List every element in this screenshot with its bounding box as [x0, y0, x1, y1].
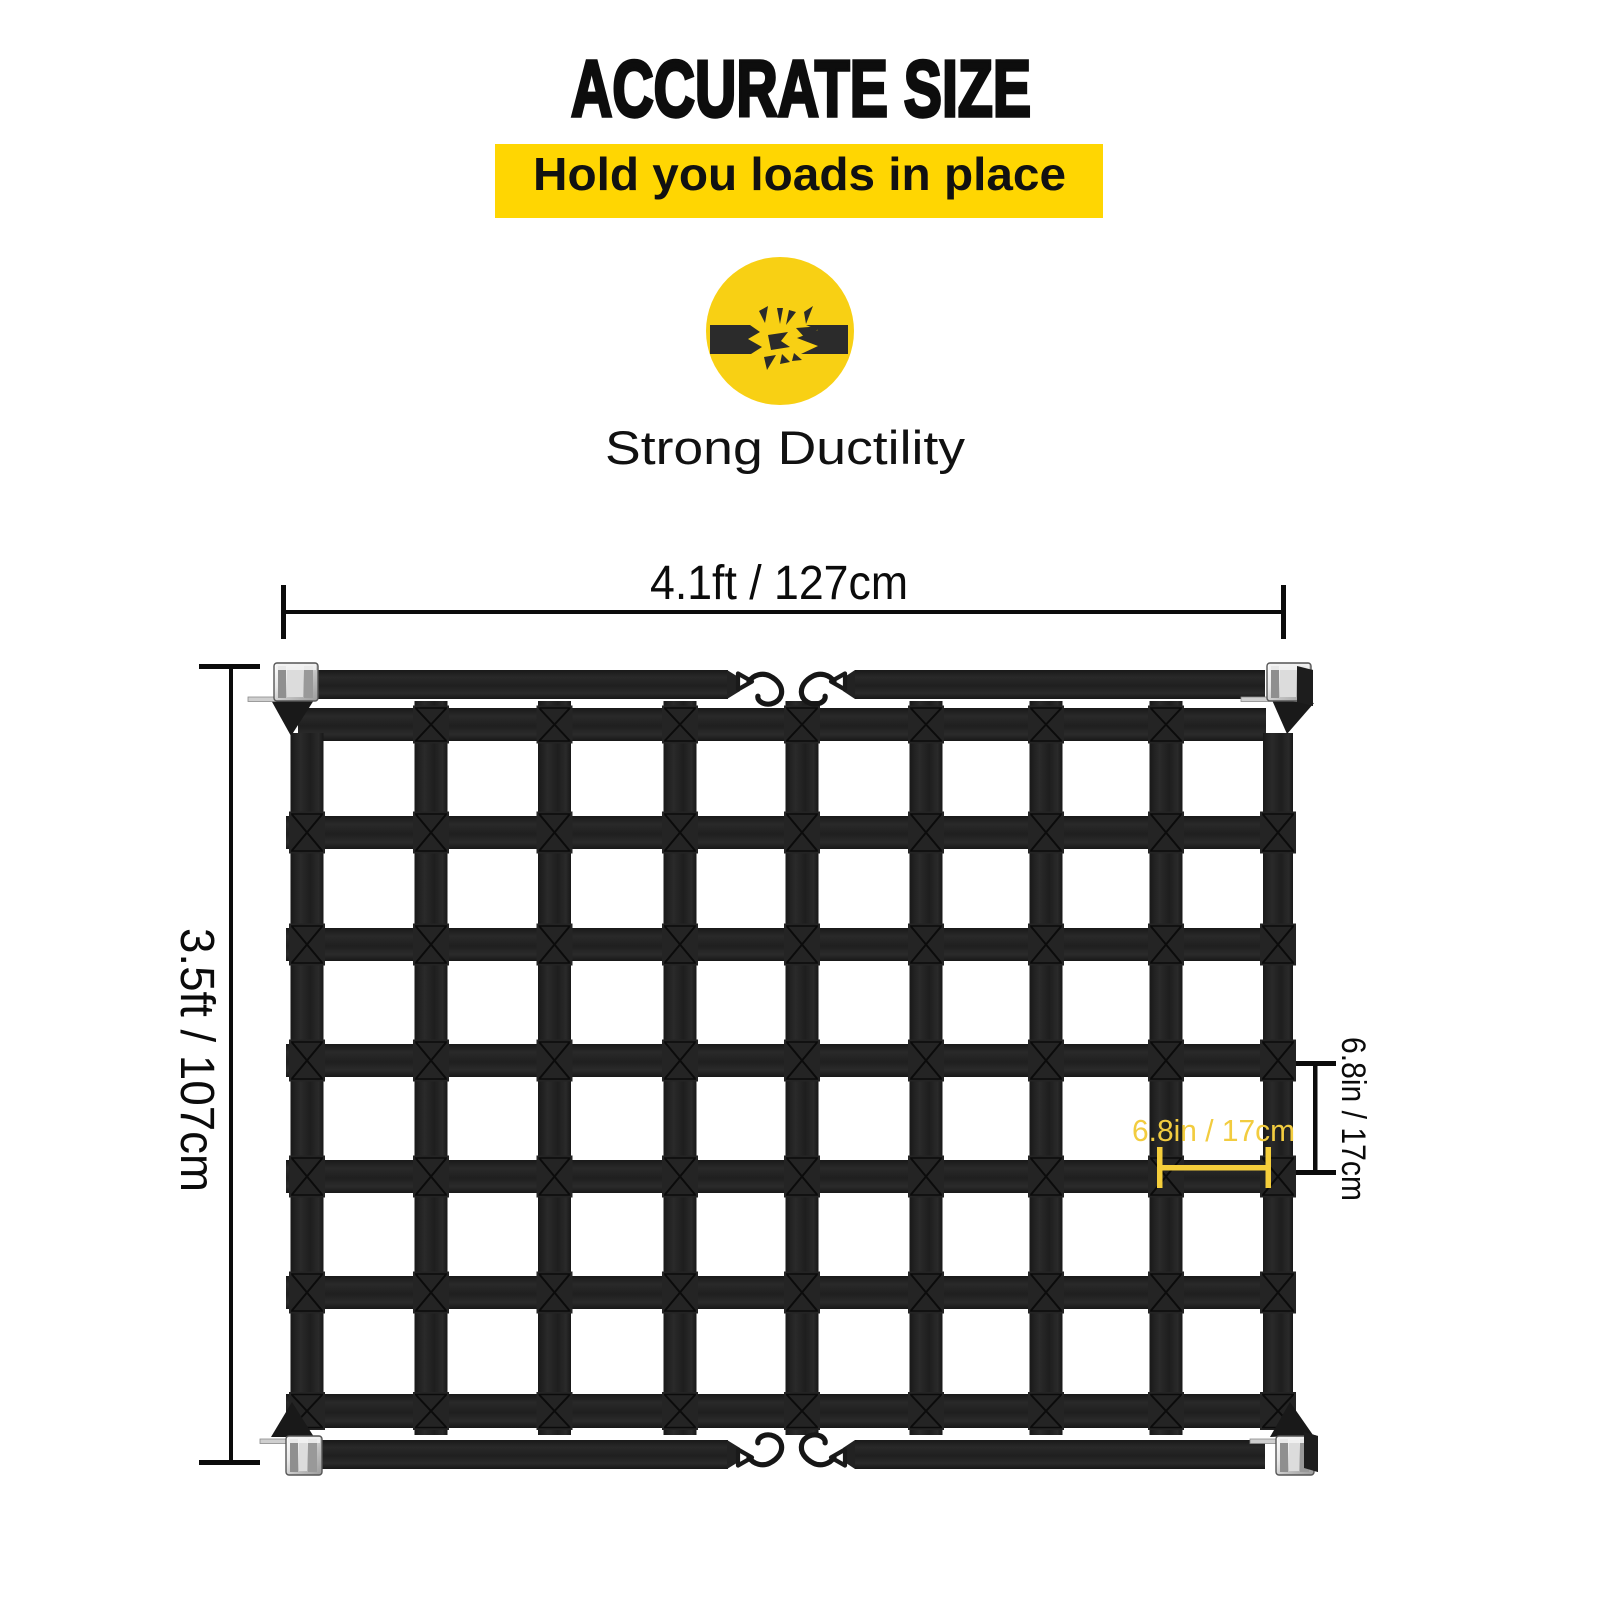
svg-text:4.1ft / 127cm: 4.1ft / 127cm	[650, 557, 908, 610]
svg-text:Hold you loads in place: Hold you loads in place	[533, 148, 1066, 200]
svg-text:3.5ft / 107cm: 3.5ft / 107cm	[170, 928, 223, 1192]
svg-text:6.8in / 17cm: 6.8in / 17cm	[1334, 1037, 1372, 1201]
svg-text:Strong Ductility: Strong Ductility	[605, 421, 966, 474]
svg-text:ACCURATE SIZE: ACCURATE SIZE	[571, 44, 1031, 133]
svg-text:6.8in / 17cm: 6.8in / 17cm	[1132, 1113, 1295, 1148]
